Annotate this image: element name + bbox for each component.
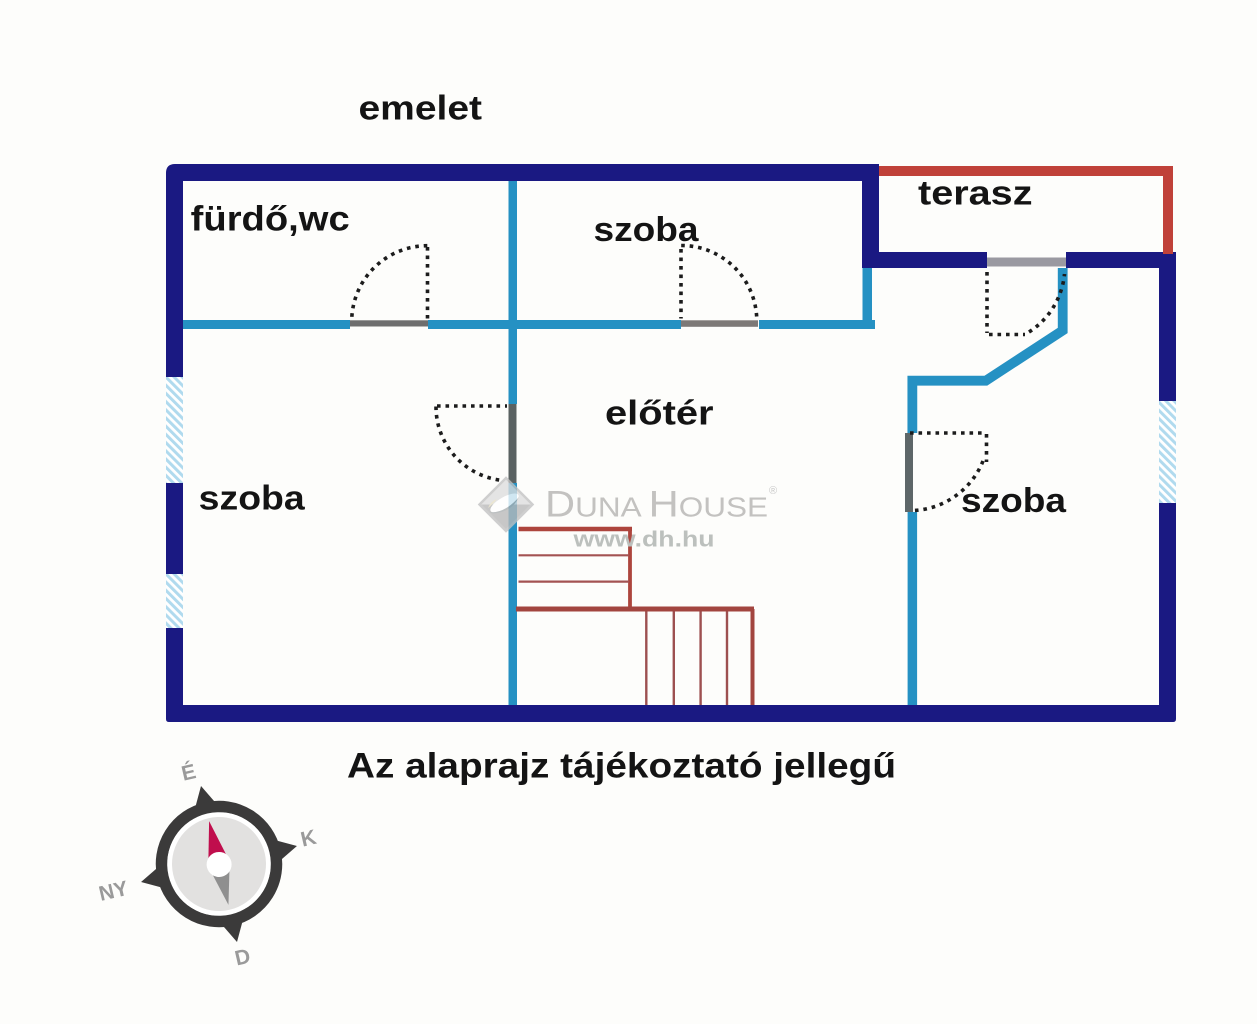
svg-text:emelet: emelet (359, 90, 483, 128)
svg-text:Az alaprajz tájékoztató jelleg: Az alaprajz tájékoztató jellegű (347, 746, 896, 786)
svg-text:®: ® (769, 485, 777, 497)
svg-text:szoba: szoba (961, 482, 1067, 520)
svg-text:szoba: szoba (199, 480, 306, 518)
svg-text:www.dh.hu: www.dh.hu (572, 527, 714, 552)
svg-text:terasz: terasz (918, 175, 1033, 213)
svg-text:szoba: szoba (594, 211, 700, 249)
svg-text:fürdő,wc: fürdő,wc (191, 199, 350, 239)
svg-text:előtér: előtér (605, 395, 714, 433)
